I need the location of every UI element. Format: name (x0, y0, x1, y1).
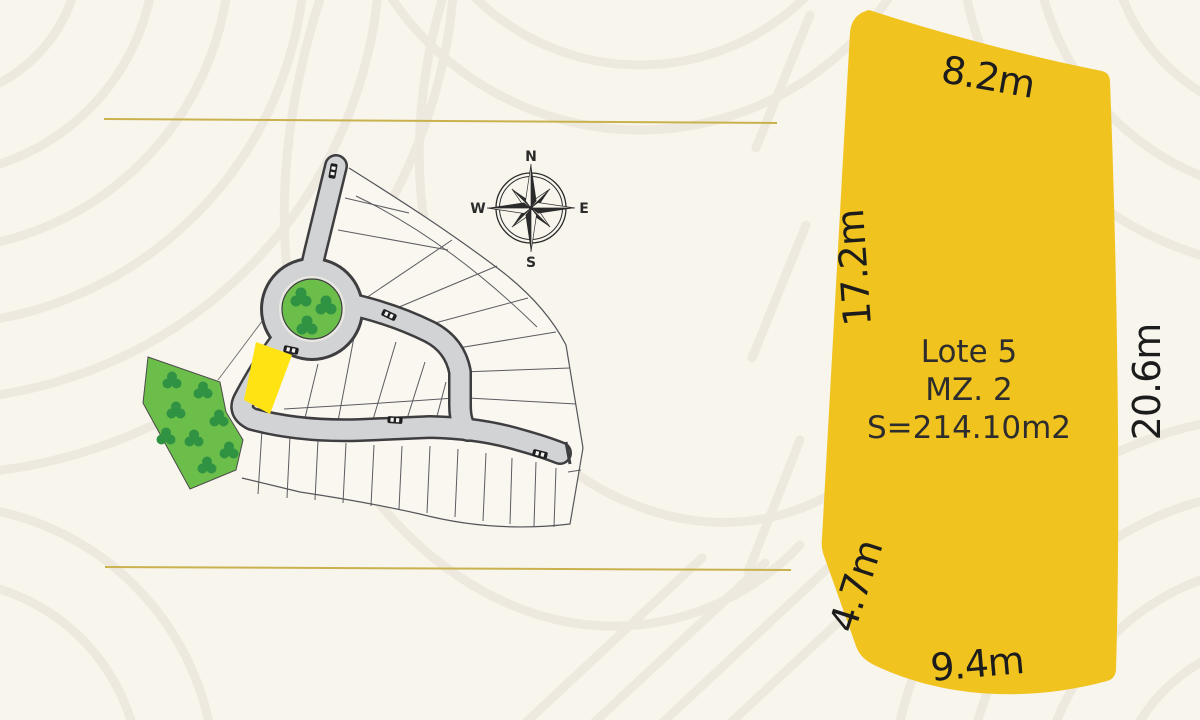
compass-rose: N S E W (470, 149, 589, 271)
lot-block: MZ. 2 (867, 371, 1071, 409)
lot-title: Lote 5 (867, 333, 1071, 371)
lot-viewer-canvas: N S E W 8.2m 17.2m 20.6m 4.7m 9.4m Lote … (0, 0, 1200, 720)
dimension-label-bottom: 9.4m (929, 638, 1026, 690)
compass-east-label: E (579, 201, 589, 217)
dimension-label-left: 17.2m (828, 208, 880, 327)
car-icon (387, 416, 402, 424)
compass-south-label: S (526, 255, 536, 271)
compass-north-label: N (525, 149, 537, 165)
dimension-label-right: 20.6m (1125, 324, 1169, 441)
compass-west-label: W (470, 201, 485, 217)
lot-area: S=214.10m2 (867, 409, 1071, 447)
lot-info: Lote 5 MZ. 2 S=214.10m2 (867, 333, 1071, 447)
compass-star (487, 164, 575, 252)
divider-line-top (104, 119, 777, 123)
